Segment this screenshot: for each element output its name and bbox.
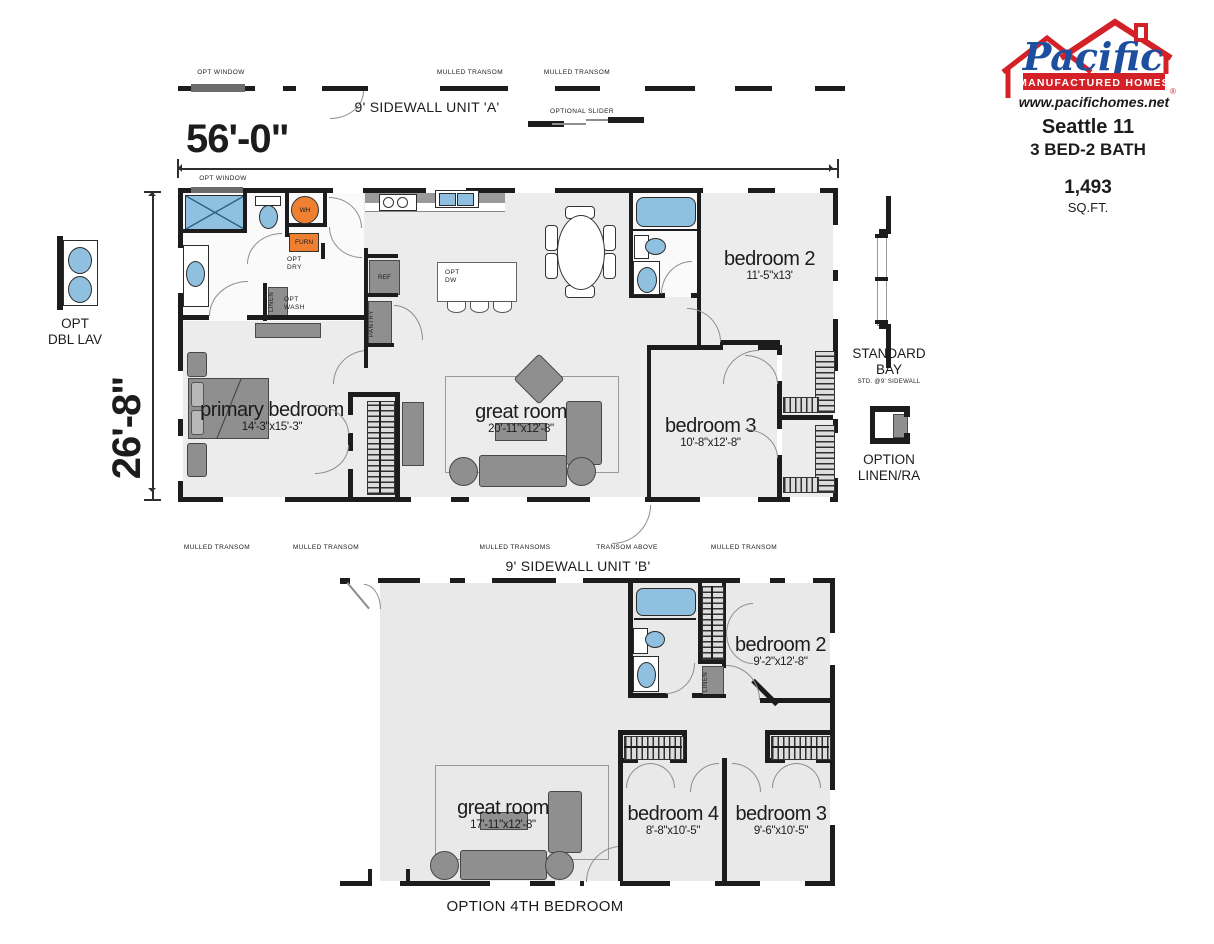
wall	[628, 693, 668, 698]
wall	[634, 618, 696, 620]
window-gap	[703, 188, 748, 193]
window-gap	[508, 86, 555, 91]
furn-label: FURN	[295, 239, 313, 246]
wall	[364, 254, 398, 258]
door-arc	[612, 505, 651, 544]
window-gap	[333, 188, 363, 193]
logo-website: www.pacifichomes.net	[1019, 94, 1171, 110]
room-dims-bed3b: 9'-6"x10'-5"	[726, 825, 836, 839]
wall	[243, 193, 247, 231]
opt-dry-label: OPT DRY	[287, 256, 319, 271]
room-dims-bed2: 11'-5"x13'	[707, 270, 832, 284]
sink-basin	[439, 193, 456, 206]
window-gap	[556, 578, 583, 583]
wall-stub	[368, 869, 372, 881]
option-linen-label: OPTION LINEN/RA	[839, 452, 939, 484]
window-gap	[740, 578, 770, 583]
door-arc	[745, 355, 778, 384]
side-table	[545, 851, 574, 880]
sink	[186, 261, 205, 287]
window-gap	[469, 497, 527, 502]
closet-rod	[624, 746, 682, 748]
closet-hanging-clothes	[624, 736, 684, 760]
room-label-great: great room	[445, 401, 597, 425]
logo-script: Pacific	[1022, 34, 1164, 79]
linen-label: LINEN	[703, 667, 723, 697]
door-opening	[590, 497, 645, 502]
std-sidewall-note: STD. @9' SIDEWALL	[839, 379, 939, 386]
room-dims-bed2b: 9'-2"x12'-8"	[723, 656, 838, 670]
shower	[185, 195, 245, 230]
window-gap	[695, 86, 735, 91]
wall	[348, 469, 353, 497]
wall	[777, 415, 833, 420]
closet-hanging-clothes	[771, 736, 831, 760]
window-gap	[700, 497, 758, 502]
floorplan-sheet: Pacific MANUFACTURED HOMES ® www.pacific…	[0, 0, 1214, 944]
refrigerator: REF	[369, 260, 400, 295]
closet-hanging-clothes	[367, 401, 395, 495]
door-arc	[315, 445, 349, 474]
dresser	[255, 323, 321, 338]
wall	[765, 730, 833, 735]
model-name: Seattle 11	[1008, 116, 1168, 140]
wall	[364, 343, 394, 347]
arrow-down	[148, 488, 156, 492]
window-gap	[515, 188, 555, 193]
room-label-bed3b: bedroom 3	[726, 803, 836, 827]
bathtub	[636, 197, 696, 227]
bay-glyph-tick	[875, 277, 888, 281]
opt-wash-label: OPT WASH	[284, 296, 320, 311]
window-gap	[490, 881, 530, 886]
room-label-bed4: bedroom 4	[618, 803, 728, 827]
slider-glyph	[552, 123, 586, 125]
mulled-transom-label: MULLED TRANSOM	[527, 69, 627, 77]
wall	[698, 660, 726, 664]
room-label-bed2: bedroom 2	[707, 248, 832, 272]
bay-glyph-tick	[875, 234, 888, 238]
nightstand	[187, 443, 207, 477]
wall	[323, 193, 327, 227]
height-dimension: 26'-8"	[104, 368, 150, 488]
window-gap	[296, 86, 322, 91]
door-arc	[687, 308, 721, 342]
wall-stub	[406, 869, 410, 881]
pantry-label: PANTRY	[369, 302, 391, 346]
opt-window-label: OPT WINDOW	[186, 69, 256, 77]
door-arc	[394, 305, 423, 340]
sqft-value: 1,493	[1064, 177, 1112, 198]
dining-table	[557, 215, 605, 290]
sidewall-b-label: 9' SIDEWALL UNIT 'B'	[478, 558, 678, 575]
stool	[493, 301, 512, 313]
lav-sink	[68, 247, 92, 274]
room-dims-greatb: 17'-11"x12'-8"	[438, 819, 568, 833]
window-gap	[600, 86, 645, 91]
wall	[364, 293, 398, 297]
arrow-up	[148, 192, 156, 196]
sink-basin	[457, 193, 474, 206]
wall	[348, 392, 400, 397]
dimension-line	[178, 168, 838, 170]
sidewall-a-label: 9' SIDEWALL UNIT 'A'	[327, 99, 527, 116]
water-heater: WH	[291, 196, 319, 224]
mulled-transom-label: MULLED TRANSOM	[420, 69, 520, 77]
toilet	[637, 662, 656, 688]
dining-chair	[603, 225, 616, 251]
wall	[760, 698, 833, 703]
transom-above-label: TRANSOM ABOVE	[577, 544, 677, 552]
door-arc	[333, 350, 368, 384]
door-opening	[777, 429, 782, 455]
arrow-right	[829, 164, 833, 172]
burner	[397, 197, 408, 208]
bathtub	[636, 588, 696, 616]
unit-b-plan: LINEN bedroom 2 9'-2"x12'-8" great room …	[340, 578, 838, 890]
window-gap	[775, 188, 820, 193]
burner	[383, 197, 394, 208]
stool	[447, 301, 466, 313]
slider-glyph	[608, 117, 644, 123]
window-gap	[670, 881, 715, 886]
dining-chair	[545, 225, 558, 251]
closet-rod	[771, 746, 829, 748]
wall	[183, 315, 209, 320]
sofa	[479, 455, 567, 487]
sink	[645, 631, 665, 648]
bay-glyph-wall	[886, 196, 891, 232]
arrow-left	[178, 164, 182, 172]
wall	[618, 730, 686, 735]
dimension-tick	[144, 499, 161, 501]
window-gap	[785, 578, 813, 583]
window-gap	[411, 497, 451, 502]
wall	[698, 694, 726, 698]
wall	[364, 348, 368, 368]
standard-bay-label: STANDARD BAY	[839, 346, 939, 378]
mulled-transoms-label: MULLED TRANSOMS	[465, 544, 565, 552]
room-dims-bed4: 8'-8"x10'-5"	[618, 825, 728, 839]
closet-rod	[711, 586, 713, 658]
wall	[633, 229, 697, 231]
toilet	[259, 205, 278, 229]
closet-hanging-clothes	[783, 397, 819, 413]
toilet	[637, 267, 657, 293]
opt-window-label: OPT WINDOW	[188, 175, 258, 183]
door-opening	[777, 355, 782, 381]
option-caption: OPTION 4TH BEDROOM	[435, 898, 635, 916]
furnace: FURN	[289, 233, 319, 252]
media-cabinet	[402, 402, 424, 466]
opt-dbl-lav-label: OPT DBL LAV	[25, 316, 125, 348]
pantry: PANTRY	[368, 301, 392, 347]
window-gap	[420, 578, 450, 583]
mulled-transom-label: MULLED TRANSOM	[694, 544, 794, 552]
closet-hanging-clothes	[702, 586, 724, 660]
lav-sink	[68, 276, 92, 303]
linen-glyph-wall	[870, 406, 875, 444]
side-table	[430, 851, 459, 880]
window-gap	[760, 881, 805, 886]
pacific-logo: Pacific MANUFACTURED HOMES ® www.pacific…	[995, 12, 1195, 112]
unit-a-plan: LINEN WH FURN OPT DRY OPT WASH REF PANTR…	[178, 188, 838, 502]
linen-glyph-wall	[904, 406, 910, 417]
wall	[247, 315, 365, 320]
opt-window-glyph	[191, 84, 245, 92]
wall	[348, 397, 353, 415]
width-dimension: 56'-0"	[186, 116, 386, 163]
optional-slider-label: OPTIONAL SLIDER	[532, 108, 632, 116]
wall	[647, 345, 723, 350]
wall	[395, 392, 400, 497]
side-table	[567, 457, 596, 486]
window-gap	[255, 86, 283, 91]
closet-hanging-clothes	[783, 477, 819, 493]
window-gap	[772, 86, 815, 91]
sink	[645, 238, 666, 255]
opt-dw-label: OPT DW	[445, 269, 479, 284]
window-gap	[465, 578, 492, 583]
mulled-transom-label: MULLED TRANSOM	[276, 544, 376, 552]
room-label-bed2b: bedroom 2	[723, 634, 838, 658]
room-dims-great: 20'-11"x12'-8"	[445, 423, 597, 437]
linen-glyph-wall	[904, 433, 910, 444]
sofa	[460, 850, 547, 880]
dimension-tick	[837, 159, 839, 178]
logo-bar-text: MANUFACTURED HOMES	[1018, 77, 1170, 89]
room-label-greatb: great room	[438, 797, 568, 821]
mulled-transom-label: MULLED TRANSOM	[167, 544, 267, 552]
ref-label: REF	[378, 274, 391, 281]
window-gap	[178, 436, 183, 481]
closet-rod	[379, 401, 381, 493]
wall	[321, 243, 325, 259]
window-gap	[833, 281, 838, 319]
dimension-line	[152, 192, 154, 500]
window-gap	[223, 497, 285, 502]
door-arc	[364, 584, 381, 609]
window-gap	[833, 225, 838, 270]
opt-window-glyph	[191, 187, 243, 193]
dining-chair	[603, 253, 616, 279]
sqft-unit: SQ.FT.	[1068, 200, 1108, 215]
wh-label: WH	[300, 207, 311, 214]
stool	[470, 301, 489, 313]
window-gap	[790, 497, 830, 502]
nightstand	[187, 352, 207, 377]
logo-registered-mark: ®	[1170, 87, 1176, 96]
wall	[183, 229, 247, 233]
side-table	[449, 457, 478, 486]
model-sqft: 1,493 SQ.FT.	[1008, 162, 1168, 215]
wall	[285, 193, 289, 237]
dining-chair	[545, 253, 558, 279]
model-specs: 3 BED-2 BATH	[1008, 140, 1168, 160]
window-gap	[372, 881, 400, 886]
window-gap	[555, 881, 580, 886]
